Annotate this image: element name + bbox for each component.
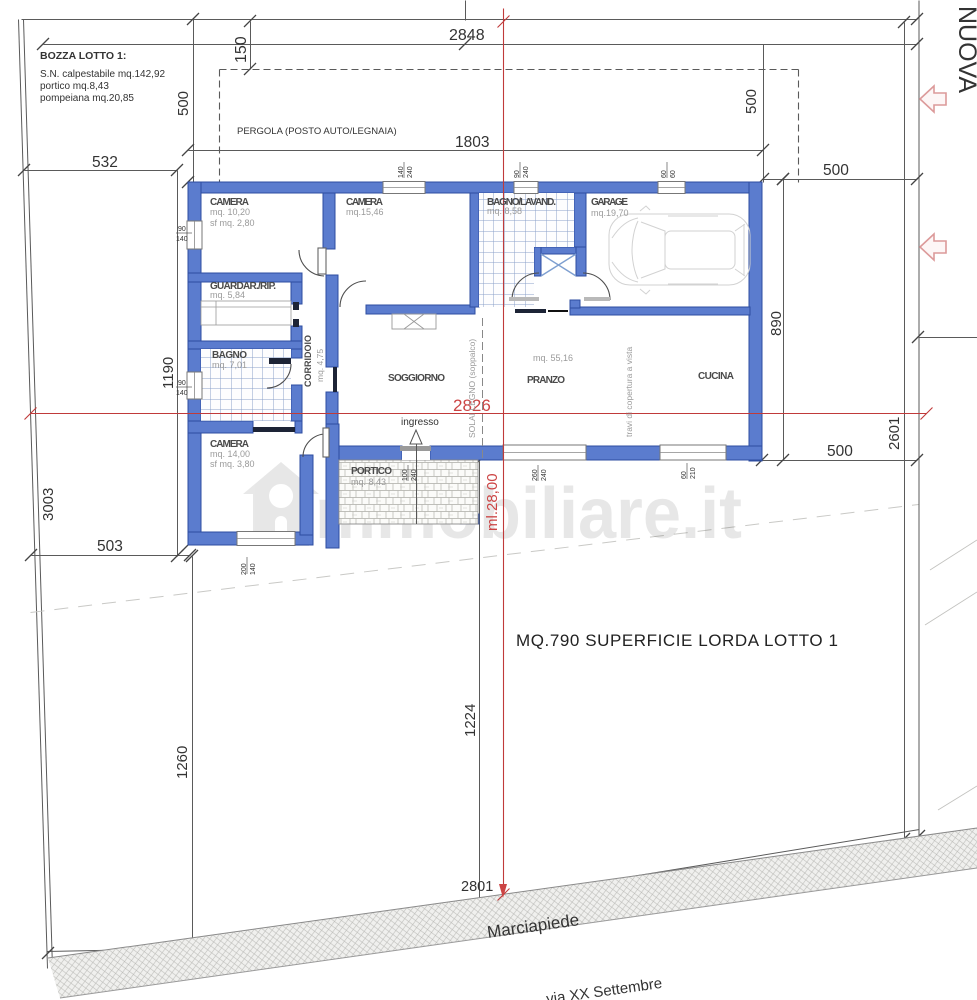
svg-text:PORTICO: PORTICO	[351, 466, 392, 477]
svg-text:60: 60	[670, 170, 677, 178]
svg-text:sf mq. 2,80: sf mq. 2,80	[210, 218, 255, 228]
svg-text:1224: 1224	[462, 704, 479, 737]
svg-text:PRANZO: PRANZO	[527, 375, 565, 386]
svg-text:mq. 4,75: mq. 4,75	[315, 349, 325, 382]
svg-text:portico mq.8,43: portico mq.8,43	[40, 81, 109, 92]
svg-text:240: 240	[541, 469, 548, 481]
svg-text:503: 503	[97, 538, 123, 555]
svg-text:90: 90	[178, 226, 186, 233]
svg-text:140: 140	[176, 390, 188, 397]
svg-text:3003: 3003	[40, 488, 57, 521]
svg-text:1803: 1803	[455, 134, 489, 151]
svg-text:140: 140	[176, 236, 188, 243]
svg-text:BOZZA LOTTO 1:: BOZZA LOTTO 1:	[40, 50, 126, 62]
svg-text:mq. 14,00: mq. 14,00	[210, 449, 250, 459]
svg-text:mq. 8,43: mq. 8,43	[351, 477, 386, 487]
svg-text:500: 500	[743, 89, 760, 114]
svg-text:ingresso: ingresso	[401, 417, 439, 428]
svg-text:mq. 5,84: mq. 5,84	[210, 290, 245, 300]
svg-text:mq. 10,20: mq. 10,20	[210, 207, 250, 217]
svg-text:890: 890	[768, 311, 785, 336]
svg-text:PERGOLA (POSTO AUTO/LEGNAIA): PERGOLA (POSTO AUTO/LEGNAIA)	[237, 126, 397, 137]
svg-text:240: 240	[407, 166, 414, 178]
svg-text:500: 500	[827, 443, 853, 460]
svg-text:mq.15,46: mq.15,46	[346, 207, 384, 217]
svg-text:mq. 55,16: mq. 55,16	[533, 353, 573, 363]
svg-text:pompeiana mq.20,85: pompeiana mq.20,85	[40, 93, 134, 104]
svg-text:CORRIDOIO: CORRIDOIO	[303, 335, 313, 387]
svg-text:ml.28,00: ml.28,00	[484, 473, 501, 531]
svg-text:mq. 7,01: mq. 7,01	[212, 360, 247, 370]
svg-text:MQ.790 SUPERFICIE LORDA LOTTO: MQ.790 SUPERFICIE LORDA LOTTO 1	[516, 631, 838, 650]
svg-text:S.N. calpestabile mq.142,92: S.N. calpestabile mq.142,92	[40, 69, 166, 80]
svg-text:2801: 2801	[461, 879, 493, 895]
svg-text:2601: 2601	[886, 417, 903, 450]
svg-text:1260: 1260	[174, 746, 191, 779]
svg-text:90: 90	[178, 380, 186, 387]
svg-text:sf mq. 3,80: sf mq. 3,80	[210, 459, 255, 469]
svg-text:210: 210	[690, 467, 697, 479]
svg-text:150: 150	[233, 36, 250, 63]
svg-text:2848: 2848	[449, 27, 485, 44]
svg-text:NUOVA: NUOVA	[953, 6, 977, 93]
svg-text:532: 532	[92, 154, 118, 171]
svg-text:240: 240	[523, 166, 530, 178]
svg-text:SOLAI LEGNO (soppalco): SOLAI LEGNO (soppalco)	[467, 339, 477, 438]
svg-text:500: 500	[175, 91, 192, 116]
svg-text:240: 240	[411, 469, 418, 481]
svg-text:mq.19,70: mq.19,70	[591, 208, 629, 218]
svg-text:mq. 8,58: mq. 8,58	[487, 206, 522, 216]
svg-text:CUCINA: CUCINA	[698, 371, 734, 382]
svg-text:500: 500	[823, 162, 849, 179]
svg-text:travi di copertura a vista: travi di copertura a vista	[624, 346, 634, 437]
svg-text:SOGGIORNO: SOGGIORNO	[388, 373, 445, 384]
svg-text:GARAGE: GARAGE	[591, 197, 628, 208]
svg-text:1190: 1190	[160, 357, 177, 389]
svg-text:140: 140	[250, 563, 257, 575]
